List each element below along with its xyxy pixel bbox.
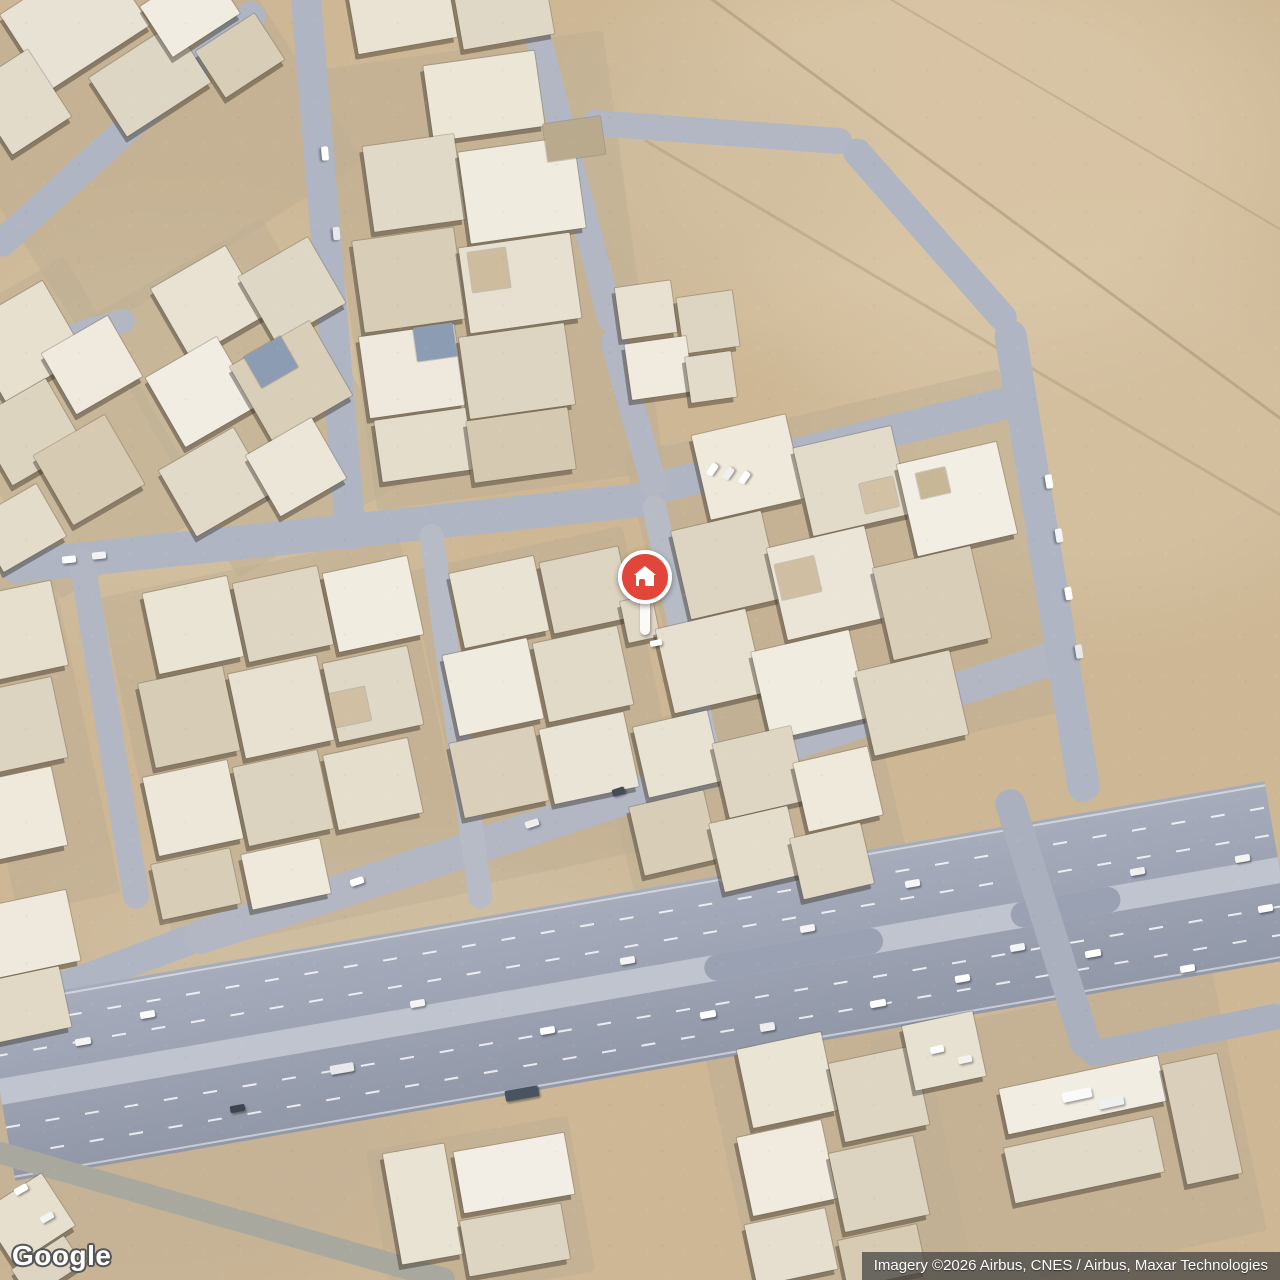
building [459, 323, 575, 419]
building [624, 336, 693, 400]
building [442, 638, 543, 736]
car [92, 551, 107, 559]
car [1044, 474, 1053, 489]
roof-detail [413, 322, 457, 361]
car [1054, 528, 1063, 543]
building [685, 351, 737, 403]
attribution-text: Imagery ©2026 Airbus, CNES / Airbus, Max… [874, 1257, 1268, 1274]
building [615, 280, 678, 339]
car [1074, 644, 1083, 659]
street [581, 109, 853, 155]
roof-detail [467, 248, 510, 293]
building [362, 134, 465, 232]
desert-track [874, 0, 1280, 236]
car [1064, 587, 1073, 601]
building [423, 51, 544, 142]
car [332, 227, 340, 241]
building [142, 576, 243, 674]
building [138, 666, 240, 768]
imagery-attribution: Imagery ©2026 Airbus, CNES / Airbus, Max… [862, 1252, 1280, 1280]
building [347, 0, 457, 54]
median-uturn-gap [702, 926, 886, 983]
car [321, 146, 329, 161]
desert-track [699, 0, 1280, 426]
google-logo[interactable]: Google [12, 1240, 111, 1272]
building [374, 408, 474, 482]
building [228, 656, 334, 759]
car [62, 555, 77, 563]
building [352, 227, 466, 332]
building [0, 890, 81, 978]
satellite-map[interactable]: Google Imagery ©2026 Airbus, CNES / Airb… [0, 0, 1280, 1280]
roof-detail [543, 116, 606, 162]
house-icon [633, 566, 657, 587]
